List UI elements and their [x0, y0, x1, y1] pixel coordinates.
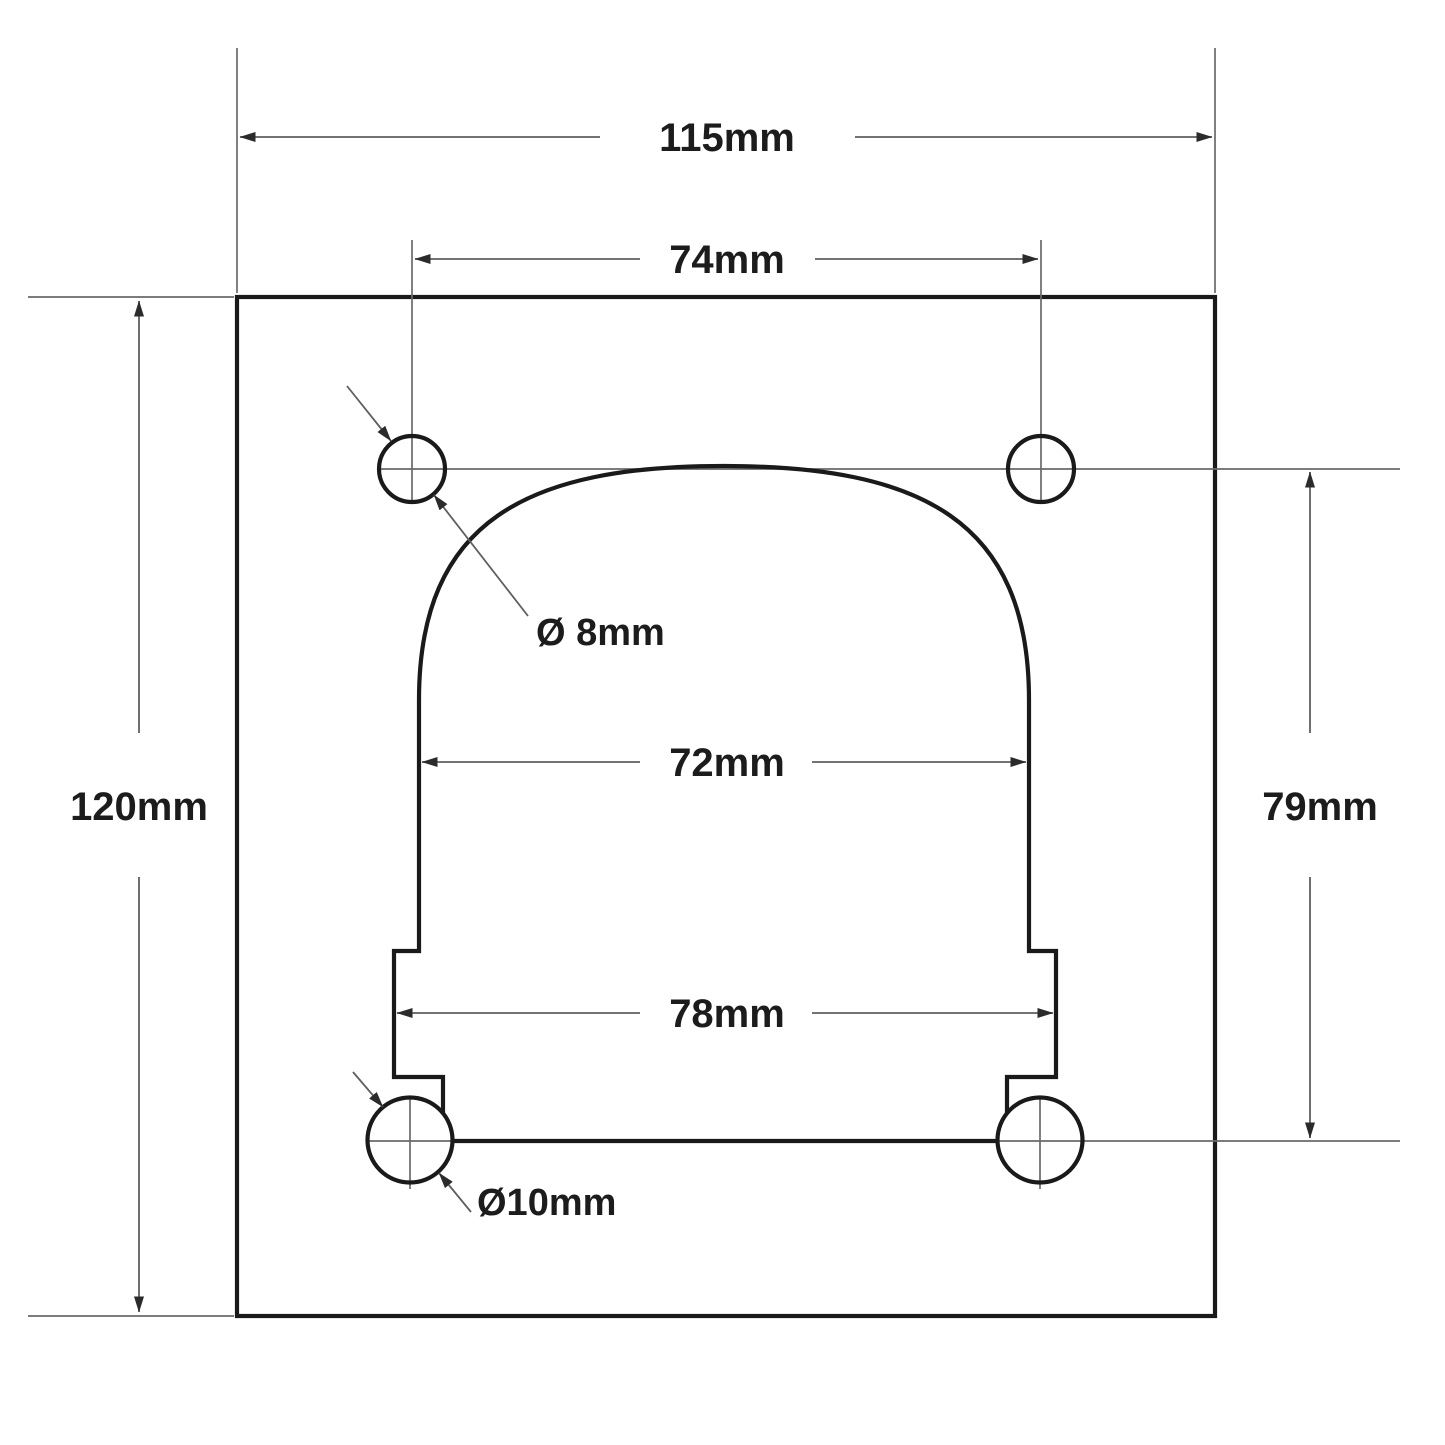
dim-label-top-hole-spacing: 74mm: [669, 238, 785, 282]
dimension-plate-width: 115mm: [240, 116, 1212, 160]
dimension-drawing-page: 115mm 74mm 120mm 79mm 72mm: [0, 0, 1445, 1445]
dim-label-plate-height: 120mm: [70, 785, 208, 829]
dim-label-top-hole-diameter: Ø 8mm: [536, 612, 665, 654]
dim-label-hole-row-spacing: 79mm: [1262, 785, 1378, 829]
dim-label-plate-width: 115mm: [659, 116, 795, 160]
dimension-hole-row-spacing: 79mm: [1262, 472, 1378, 1138]
blueprint-svg: 115mm 74mm 120mm 79mm 72mm: [0, 0, 1445, 1445]
dim-label-cutout-lower-width: 78mm: [669, 992, 785, 1036]
dim-label-bottom-hole-diameter: Ø10mm: [477, 1182, 616, 1224]
dimension-top-hole-spacing: 74mm: [415, 238, 1038, 282]
dimension-plate-height: 120mm: [70, 301, 208, 1312]
dim-label-cutout-upper-width: 72mm: [669, 741, 785, 785]
